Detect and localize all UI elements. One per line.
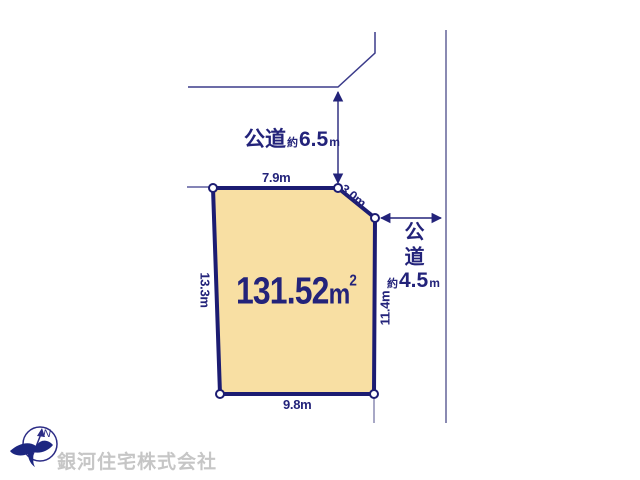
right-road-width-unit: m: [428, 276, 440, 290]
compass-north-label: N: [43, 428, 51, 440]
parcel-area-unit: m: [329, 279, 350, 312]
vertex-marker: [209, 184, 217, 192]
right-road-approx: 約: [386, 275, 399, 291]
vertex-marker: [371, 214, 379, 222]
top-road-name: 公道: [244, 123, 286, 153]
top-road-width-unit: m: [328, 135, 340, 149]
parcel-area-exponent: 2: [349, 273, 356, 291]
compass-bird-shape: [10, 441, 53, 467]
vertex-marker: [370, 390, 378, 398]
right-road-width-value: 4.5: [399, 269, 428, 293]
dimension-bottom-edge: 9.8m: [283, 397, 311, 412]
top-road-approx: 約: [286, 134, 299, 150]
right-road-name: 公道: [398, 221, 427, 271]
parcel-area-value: 131.52: [236, 271, 329, 314]
top-road-label: 公道 約 6.5 m: [244, 123, 340, 153]
compass-north-icon: N: [10, 427, 57, 467]
dimension-right-edge: 11.4m: [378, 291, 393, 326]
top-road-width-value: 6.5: [299, 128, 328, 152]
dimension-left-edge: 13.3m: [198, 272, 213, 307]
parcel-diagram: N 公道 約 6.5 m 7.9m 3.0m 13.3m 11.4m 9.8m …: [0, 0, 640, 480]
parcel-area-label: 131.52 m 2: [236, 271, 356, 314]
company-watermark: 銀河住宅株式会社: [57, 447, 217, 474]
diagram-geometry: N: [0, 0, 640, 480]
vertex-marker: [216, 390, 224, 398]
dimension-top-edge: 7.9m: [262, 170, 290, 185]
top-road-boundary-line: [188, 32, 375, 87]
right-road-width-label: 約 4.5 m: [386, 269, 440, 293]
